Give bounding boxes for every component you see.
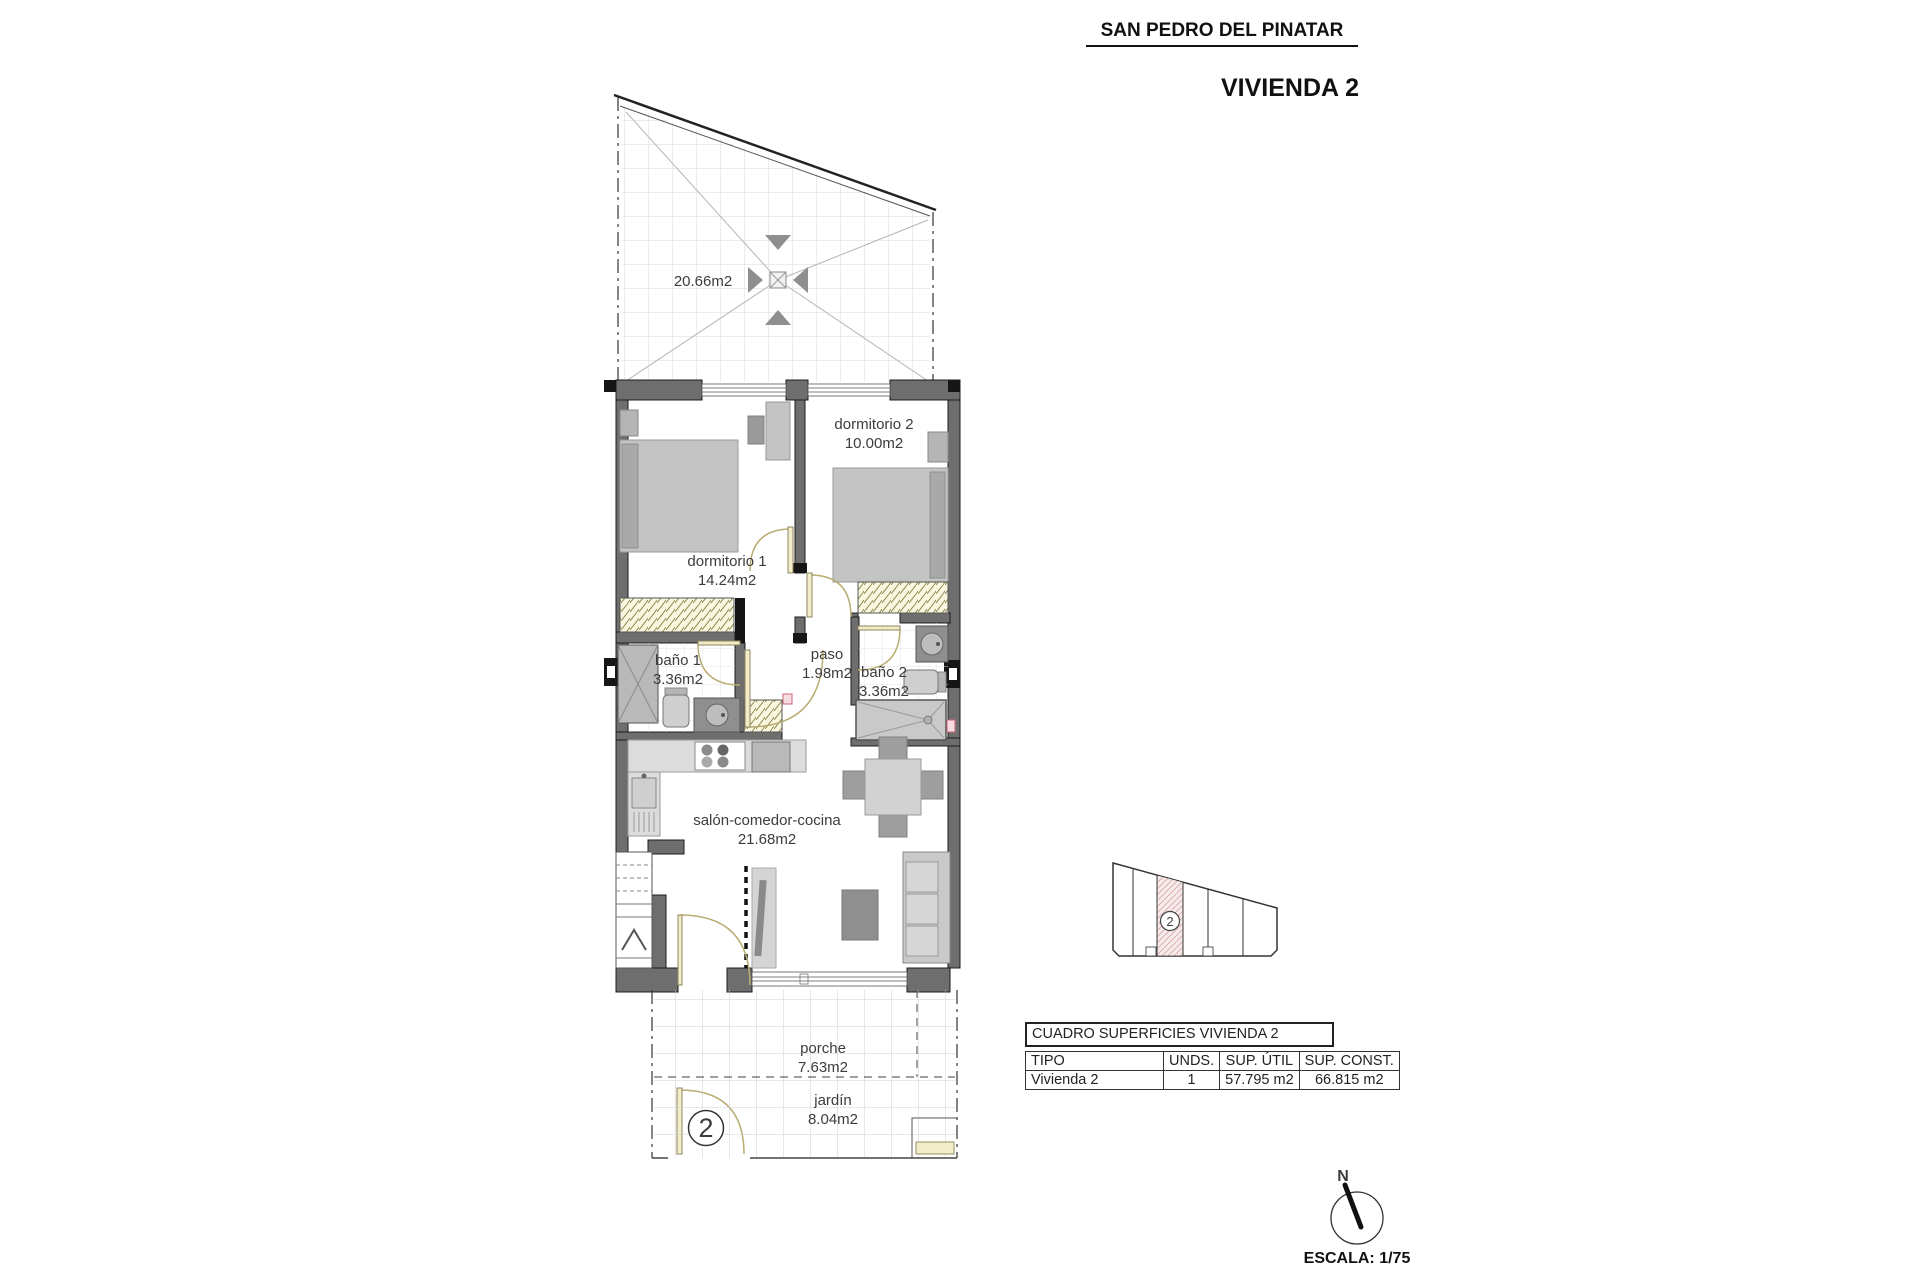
label-paso-area: 1.98m2 [802,665,852,682]
unit-title: VIVIENDA 2 [1188,74,1392,103]
compass-needle-icon [1345,1185,1361,1227]
bed-dormitorio2-icon [833,432,948,582]
floorplan-drawing: 20.66m2 [0,0,1920,1280]
desk-dormitorio1-icon [748,402,790,460]
label-salon: salón-comedor-cocina [693,812,841,829]
surfaces-table-row: Vivienda 2 1 57.795 m2 66.815 m2 [1026,1071,1400,1090]
label-jardin: jardín [813,1092,852,1109]
bed-dormitorio1-icon [620,410,738,552]
window-dormitorio1 [702,384,786,396]
roof-terrace: 20.66m2 [600,90,940,385]
tv-unit-icon [746,866,776,968]
fridge-icon [752,742,790,772]
floorplan-page: 20.66m2 [0,0,1920,1280]
surfaces-table-block: CUADRO SUPERFICIES VIVIENDA 2 TIPO UNDS.… [1025,1022,1400,1090]
cell-tipo: Vivienda 2 [1026,1071,1164,1090]
washbasin-bano1-icon [694,698,740,732]
svg-text:2: 2 [698,1113,713,1143]
surfaces-table: TIPO UNDS. SUP. ÚTIL SUP. CONST. Viviend… [1025,1051,1400,1090]
bathtub-bano2-icon [856,700,946,740]
radiator-mark-paso [783,694,792,704]
label-bano1: baño 1 [655,652,701,669]
toilet-bano2-icon [904,670,946,694]
site-lot-outline [1113,863,1277,956]
label-dormitorio1-area: 14.24m2 [698,572,756,589]
cooktop-icon [695,742,745,770]
location-title: SAN PEDRO DEL PINATAR [1086,20,1358,47]
sofa-icon [903,852,950,963]
col-unds: UNDS. [1164,1052,1220,1071]
label-jardin-area: 8.04m2 [808,1111,858,1128]
compass: N [1331,1168,1383,1244]
window-dormitorio2 [808,384,890,396]
surfaces-table-header-row: TIPO UNDS. SUP. ÚTIL SUP. CONST. [1026,1052,1400,1071]
col-tipo: TIPO [1026,1052,1164,1071]
col-sup-util: SUP. ÚTIL [1220,1052,1300,1071]
svg-text:2: 2 [1166,914,1173,929]
roof-area-label: 20.66m2 [674,273,732,290]
cell-sup-util: 57.795 m2 [1220,1071,1300,1090]
wardrobe-dormitorio2-icon [858,582,948,613]
label-bano2: baño 2 [861,664,907,681]
surfaces-table-title: CUADRO SUPERFICIES VIVIENDA 2 [1025,1022,1334,1047]
label-bano1-area: 3.36m2 [653,671,703,688]
label-porche-area: 7.63m2 [798,1059,848,1076]
side-window-slit-right [949,668,957,680]
label-dormitorio1: dormitorio 1 [687,553,766,570]
label-dormitorio2-area: 10.00m2 [845,435,903,452]
stairs-icon [616,852,652,968]
label-dormitorio2: dormitorio 2 [834,416,913,433]
col-sup-const: SUP. CONST. [1299,1052,1399,1071]
garden-sill [916,1142,954,1154]
radiator-mark-bano2 [947,720,955,732]
coffee-table-icon [842,890,878,940]
entrance-unit-badge: 2 [689,1111,724,1146]
label-porche: porche [800,1040,846,1057]
roof-drain-icon [770,272,786,288]
dining-table-icon [843,737,943,837]
toilet-bano1-icon [663,688,689,727]
wardrobe-dormitorio1-icon [620,598,734,632]
site-key-plan: 2 [1113,863,1277,956]
label-paso: paso [811,646,844,663]
window-salon-porche [752,972,907,986]
label-bano2-area: 3.36m2 [859,683,909,700]
compass-north-label: N [1337,1168,1349,1185]
cell-unds: 1 [1164,1071,1220,1090]
label-salon-area: 21.68m2 [738,831,796,848]
scale-label: ESCALA: 1/75 [1283,1250,1431,1268]
side-window-slit-left [607,666,615,678]
washbasin-bano2-icon [916,626,948,662]
cell-sup-const: 66.815 m2 [1299,1071,1399,1090]
